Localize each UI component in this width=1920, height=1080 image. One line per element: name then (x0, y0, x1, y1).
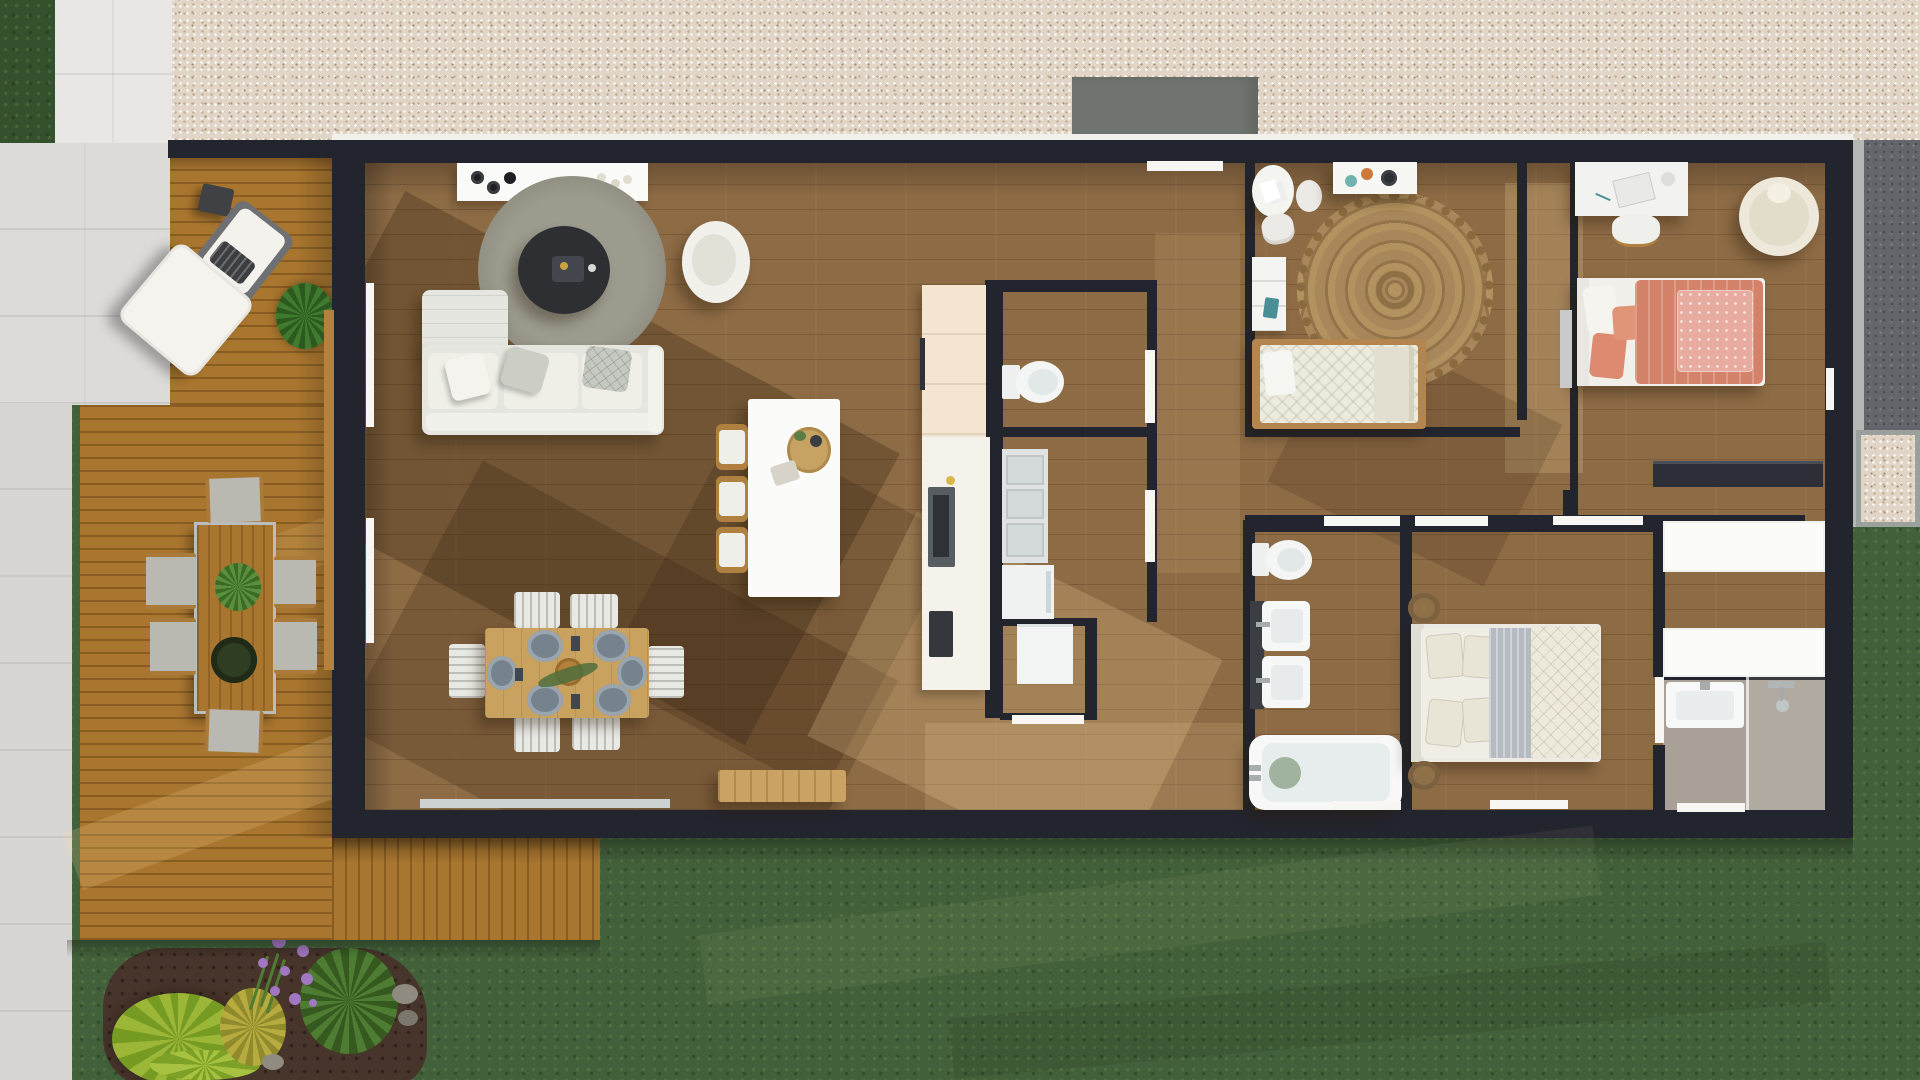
wall-top-deck-beam (168, 140, 332, 158)
daybed[interactable] (1252, 339, 1426, 429)
desk-notebook (1612, 172, 1656, 208)
tray-herbs (794, 431, 806, 441)
wall-hall-stub (1563, 490, 1573, 518)
counter-item-bowl (946, 476, 955, 485)
fridge-handle[interactable] (920, 338, 925, 390)
outdoor-chair-bottom[interactable] (204, 709, 263, 753)
tile-path-left-narrow (0, 403, 72, 1080)
bottom-window (1333, 801, 1401, 810)
rear-bedroom-door[interactable] (1415, 516, 1488, 526)
wall-corridor-left (1147, 292, 1157, 622)
wall-wc-bottom (1000, 427, 1157, 437)
jute-pouf[interactable] (1408, 761, 1440, 790)
bath-mat (1269, 757, 1301, 789)
pillow-patterned (1425, 698, 1466, 748)
plate (487, 656, 517, 690)
dining-chair[interactable] (570, 594, 618, 628)
front-door[interactable] (1147, 161, 1223, 171)
sink-basin (1271, 665, 1303, 700)
toy-plate-teal (1345, 175, 1357, 187)
kitchen-island[interactable] (748, 399, 840, 597)
papasan-fold (1767, 183, 1791, 203)
rug-center-ring (1376, 271, 1414, 309)
dining-chair[interactable] (514, 716, 560, 752)
table-plant-spiky (215, 563, 261, 611)
sink-faucet (1256, 622, 1270, 627)
bar-stool[interactable] (716, 476, 748, 522)
table-plant-pot (211, 637, 257, 683)
gravel-driveway (0, 0, 1920, 143)
right-wall-window (1826, 368, 1834, 410)
desk-chair[interactable] (1612, 214, 1660, 244)
sink-basin (1271, 609, 1303, 643)
napkin (571, 636, 580, 651)
toilet-main-bath[interactable] (1252, 540, 1312, 580)
laundry-door[interactable] (1145, 490, 1155, 562)
wall-right (1825, 163, 1853, 838)
outdoor-chair-top[interactable] (205, 477, 265, 523)
dishwasher-open[interactable] (1002, 449, 1048, 563)
wall-study-right (1517, 163, 1527, 420)
coral-bed[interactable] (1577, 278, 1765, 386)
diamond-duvet (1531, 626, 1599, 758)
bar-stool[interactable] (716, 424, 748, 470)
washer-door-edge (1046, 571, 1051, 613)
table-papers (1259, 179, 1280, 203)
dishwasher-rack (1006, 523, 1044, 557)
desk-lamp (1661, 172, 1675, 186)
napkin (571, 694, 580, 709)
toilet-wc[interactable] (1002, 361, 1064, 403)
house-shadow-lawn (332, 838, 1853, 864)
oven[interactable] (929, 611, 953, 657)
dark-gravel-side (1864, 140, 1920, 432)
bottom-window (1490, 800, 1568, 809)
garden-rock (392, 984, 418, 1004)
bar-stool[interactable] (716, 527, 748, 573)
papasan-chair[interactable] (1739, 177, 1819, 256)
garden-rock (262, 1054, 284, 1070)
tile-walkway-top (55, 0, 172, 148)
garden-rock (398, 1010, 418, 1026)
napkin (515, 668, 523, 681)
grass-strip-top-left (0, 0, 55, 145)
armchair-cushion (692, 234, 736, 286)
living-window-upper (366, 283, 374, 427)
study-round-table[interactable] (1252, 165, 1294, 217)
wall-utility-right (1085, 622, 1097, 720)
tray-gold-item (560, 262, 568, 270)
plate (593, 630, 629, 662)
dark-wardrobe[interactable] (1653, 461, 1823, 487)
shower-sink[interactable] (1666, 682, 1744, 728)
toilet-seat (1277, 548, 1305, 572)
living-window-lower (366, 518, 374, 643)
wall-left (332, 158, 365, 838)
outdoor-chair-left-2[interactable] (150, 618, 196, 675)
pillow-patterned (1425, 633, 1465, 680)
vinyl-record (504, 172, 516, 184)
study-dresser[interactable] (1252, 257, 1286, 331)
vinyl-record (471, 171, 484, 184)
play-shelf[interactable] (1333, 162, 1417, 194)
sofa-back (426, 413, 660, 431)
concrete-entry-pad (1072, 77, 1258, 141)
daybed-pillow (1262, 350, 1296, 397)
deck-shadow-lawn (67, 940, 600, 958)
bedroom-desk[interactable] (1575, 162, 1688, 216)
sofa-chaise[interactable] (422, 290, 508, 352)
allium-stems (259, 953, 279, 1007)
wall-wc-top (985, 280, 1157, 292)
coral-bedroom-door[interactable] (1560, 310, 1572, 388)
bathtub[interactable] (1249, 735, 1402, 810)
wall-left-wood-cladding (324, 310, 334, 670)
rear-bed[interactable] (1411, 624, 1601, 762)
gray-throw (1489, 628, 1533, 758)
dresser-teal-item (1263, 297, 1280, 319)
toilet-seat (1028, 369, 1058, 395)
stool-cushion (719, 482, 745, 516)
jute-pouf[interactable] (1408, 593, 1440, 623)
shower-zone-highlight (1749, 677, 1825, 810)
dishwasher-rack (1006, 455, 1044, 485)
outdoor-chair-right-2[interactable] (274, 618, 317, 674)
island-napkin (770, 459, 801, 486)
hall-bedroom-door[interactable] (1553, 516, 1643, 525)
wall-top (332, 140, 1853, 163)
wall-bottom (332, 810, 1853, 838)
plate (527, 630, 563, 662)
stool-cushion (719, 430, 745, 464)
dotted-blanket (1677, 290, 1753, 372)
outdoor-dining-table[interactable] (194, 522, 276, 714)
sink-faucet (1700, 682, 1710, 690)
toy-plate-orange (1361, 168, 1373, 180)
white-wardrobe[interactable] (1663, 521, 1825, 572)
dining-chair[interactable] (514, 592, 560, 628)
wall-bedroom-right-lower (1653, 745, 1665, 810)
gravel-patch-right (1856, 430, 1920, 527)
outdoor-chair-left-1[interactable] (146, 553, 196, 609)
coffee-table-tray (552, 256, 584, 282)
dining-chair[interactable] (572, 716, 620, 750)
tile-path-left-wide (0, 143, 172, 405)
vinyl-record (487, 181, 500, 194)
dining-chair[interactable] (449, 644, 485, 698)
sink-basin (1676, 691, 1734, 720)
kitchen-tall-cabinet[interactable] (922, 285, 986, 437)
tray-white-item (588, 264, 596, 272)
dishwasher-rack (1006, 489, 1044, 519)
desk-pen (1595, 193, 1610, 201)
plate (527, 684, 563, 716)
study-side-stool[interactable] (1296, 180, 1322, 212)
sofa-armrest (648, 347, 662, 433)
shower-bath-door[interactable] (1655, 677, 1664, 743)
cooktop-glass (933, 495, 949, 557)
swivel-armchair[interactable] (682, 221, 750, 303)
white-wardrobe[interactable] (1663, 628, 1825, 677)
outdoor-chair-right-1[interactable] (274, 556, 316, 608)
floor-plan-render (0, 0, 1920, 1080)
bathroom-door[interactable] (1324, 516, 1400, 526)
toy-pan (1381, 170, 1397, 186)
utility-door[interactable] (1012, 715, 1084, 724)
plate (617, 656, 647, 690)
wc-door[interactable] (1145, 350, 1155, 423)
round-coffee-table[interactable] (518, 226, 610, 314)
dryer[interactable] (1017, 624, 1073, 684)
sofa-pillow-diamond (581, 345, 632, 393)
daybed-blanket (1374, 347, 1414, 421)
dining-chair[interactable] (648, 646, 684, 698)
cooktop[interactable] (928, 487, 955, 567)
bath-faucet (1249, 765, 1261, 771)
tray-bowl-dark (810, 435, 822, 447)
console-bench[interactable] (718, 770, 846, 802)
stool-cushion (719, 533, 745, 567)
sink-faucet (1256, 678, 1270, 683)
dining-table[interactable] (485, 628, 649, 718)
sliding-door-track[interactable] (420, 799, 670, 808)
washing-machine[interactable] (1002, 565, 1054, 619)
bottom-window (1677, 803, 1745, 812)
